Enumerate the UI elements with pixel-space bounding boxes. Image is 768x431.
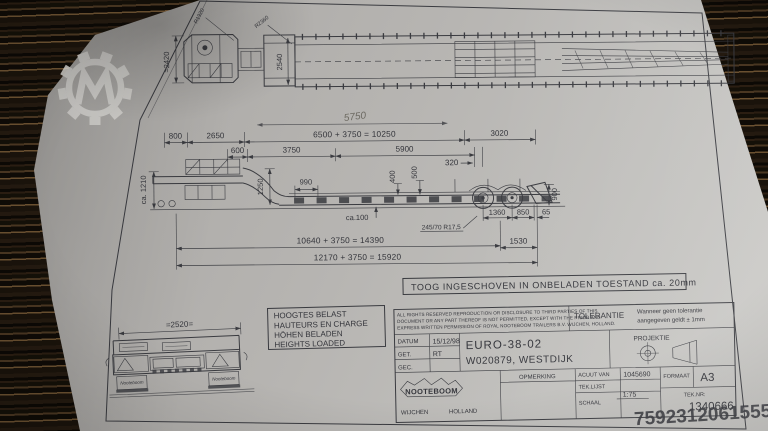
- dim-2420-label: ≈2420: [162, 52, 171, 73]
- rear-view: =2520= Nooteboom Nooteboom: [104, 317, 254, 398]
- trailer-drawing: ≈2420 2540 R1320 R2360: [0, 0, 768, 431]
- dim-eq-mid-label: 10640 + 3750 = 14390: [297, 235, 385, 246]
- dim-1250-label: 1250: [256, 178, 265, 195]
- acuut-value: 1045690: [623, 371, 650, 379]
- teknr-label: TEK.NR:: [684, 392, 706, 398]
- projektie-label: PROJEKTIE: [633, 335, 670, 343]
- side-view: [150, 156, 565, 211]
- dim-850-label: 850: [517, 208, 530, 217]
- dim-500-label: 500: [410, 166, 419, 179]
- gec-label: GEC.: [398, 365, 413, 371]
- schaal-label: SCHAAL: [579, 400, 601, 406]
- handwritten-5750: 5750: [343, 110, 367, 124]
- photo-id-watermark: 7592312061555: [633, 401, 768, 430]
- dim-2650-label: 2650: [206, 131, 224, 140]
- get-value: RT: [433, 351, 443, 358]
- photo-of-technical-drawing: ≈2420 2540 R1320 R2360: [0, 0, 768, 431]
- drawing-type-line-2: W020879, WESTDIJK: [466, 354, 574, 367]
- dim-990-label: 990: [300, 177, 313, 186]
- formaat-value: A3: [700, 372, 714, 384]
- dim-320-label: 320: [445, 158, 459, 167]
- heights-line-fr: HAUTEURS EN CHARGE: [274, 319, 368, 330]
- heights-line-nl: HOOGTES BELAST: [274, 309, 347, 320]
- dim-radius-right-label: R2360: [254, 15, 270, 30]
- dim-65-label: 65: [542, 207, 550, 216]
- dim-ca100-label: ca.100: [346, 213, 369, 222]
- dim-2520-label: =2520=: [166, 319, 194, 329]
- tolerantie-line-1: Wanneer geen tolerantie: [637, 308, 703, 315]
- schaal-value: 1:75: [623, 392, 637, 399]
- dim-1360-label: 1360: [489, 208, 506, 217]
- acuut-label: ACUUT VAN: [578, 372, 609, 379]
- gear-watermark-icon: [59, 53, 132, 125]
- projection-symbol-icon: [637, 340, 697, 365]
- tyre-size-label: 245/70 R17,5: [422, 224, 461, 231]
- top-view: ≈2420 2540 R1320 R2360: [162, 3, 735, 88]
- country-label: HOLLAND: [449, 409, 478, 416]
- dim-5900-label: 5900: [396, 145, 414, 154]
- get-label: GET.: [398, 352, 412, 358]
- dim-2540-label: 2540: [275, 54, 284, 71]
- dim-3750-label: 3750: [283, 146, 301, 155]
- dim-900-label: 900: [550, 188, 559, 201]
- nooteboom-logo: NOOTEBOOM: [400, 378, 462, 397]
- mudflap-brand-right: Nooteboom: [212, 376, 236, 382]
- city-label: WIJCHEN: [401, 410, 428, 417]
- drawing-type-line-1: EURO-38-02: [466, 338, 543, 352]
- heights-line-en: HEIGHTS LOADED: [274, 339, 345, 350]
- dim-600-label: 600: [231, 146, 245, 155]
- sheet-border: [106, 0, 746, 429]
- datum-label: DATUM: [397, 339, 418, 345]
- formaat-label: FORMAAT: [663, 373, 690, 380]
- tolerantie-line-2: aangegeven geldt ± 1mm: [637, 317, 705, 324]
- dim-1210-label: ca. 1210: [139, 175, 148, 204]
- dim-400-label: 400: [388, 170, 397, 183]
- tolerantie-label: TOLERANTIE: [574, 311, 624, 321]
- brand-text: NOOTEBOOM: [405, 386, 458, 396]
- dim-1530-label: 1530: [509, 237, 527, 246]
- dim-eq-total-label: 12170 + 3750 = 15920: [314, 252, 402, 263]
- side-view-dimensions: 5750 800 2650 6500 + 3750 = 10250 3020 6…: [138, 109, 559, 270]
- heights-box: HOOGTES BELAST HAUTEURS EN CHARGE HÖHEN …: [267, 305, 385, 349]
- dim-800-label: 800: [169, 132, 183, 141]
- note-box: TOOG INGESCHOVEN IN ONBELADEN TOESTAND c…: [403, 273, 697, 294]
- dim-eq-top-label: 6500 + 3750 = 10250: [313, 129, 396, 140]
- mudflap-brand-left: Nooteboom: [120, 380, 144, 386]
- datum-value: 15/12/98: [432, 338, 459, 346]
- title-block: ALL RIGHTS RESERVED REPRODUCTION OR DISC…: [394, 302, 736, 422]
- opmerking-label: OPMERKING: [519, 374, 556, 381]
- teklijst-label: TEK.LIJST: [578, 384, 605, 391]
- dim-3020-label: 3020: [490, 129, 508, 138]
